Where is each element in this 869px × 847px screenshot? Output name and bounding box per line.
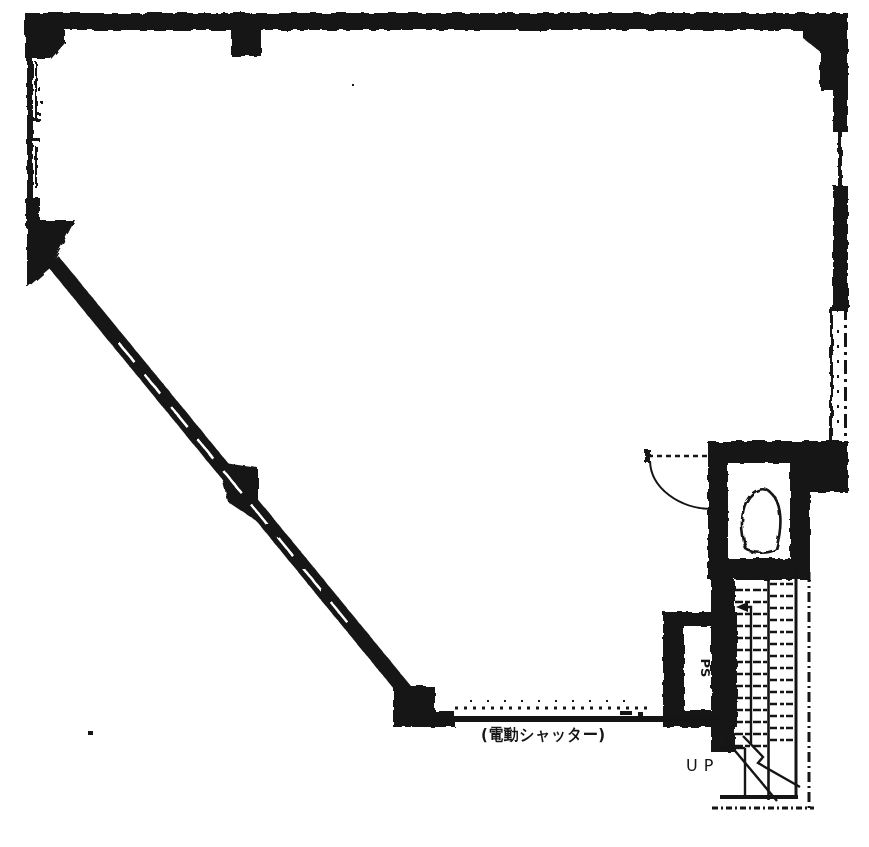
scan-speck	[352, 84, 354, 86]
scan-speck	[40, 101, 43, 104]
stair-left-wall	[711, 580, 735, 752]
left-wall-inner-line	[35, 146, 37, 188]
top-wall-pier	[231, 28, 261, 56]
stair-up-label: UP	[686, 756, 719, 775]
electric-shutter-label: (電動シャッター)	[481, 725, 606, 746]
left-window-jamb	[27, 118, 40, 122]
left-wall-inner-line	[35, 62, 37, 120]
left-wall-outer-line	[27, 53, 33, 205]
top-left-corner	[25, 13, 65, 59]
toilet-door-swing-arc	[650, 461, 714, 509]
scan-speck	[38, 88, 41, 91]
floor-plan-page: (電動シャッター) UP PS	[0, 0, 869, 847]
stair-treads-right	[770, 584, 795, 740]
right-window-inner-line	[830, 308, 833, 448]
right-wall-thin-segment	[838, 128, 842, 190]
stair-up-arrow	[745, 607, 751, 744]
shutter-sill-line	[432, 716, 718, 722]
stair-up-arrowhead	[736, 602, 748, 612]
scan-speck	[37, 112, 40, 115]
right-wall-mid	[833, 186, 848, 312]
shaft-label: PS	[691, 648, 713, 688]
shutter-dash-mark	[620, 711, 632, 715]
scan-speck	[88, 731, 93, 735]
shutter-dash-mark	[638, 712, 643, 716]
diagonal-window-line	[118, 342, 352, 628]
top-wall	[25, 13, 848, 30]
diagonal-pier-mid	[218, 462, 258, 522]
left-window-jamb	[27, 138, 40, 142]
floor-plan-drawing	[0, 0, 869, 847]
right-wall-upper	[833, 28, 848, 132]
